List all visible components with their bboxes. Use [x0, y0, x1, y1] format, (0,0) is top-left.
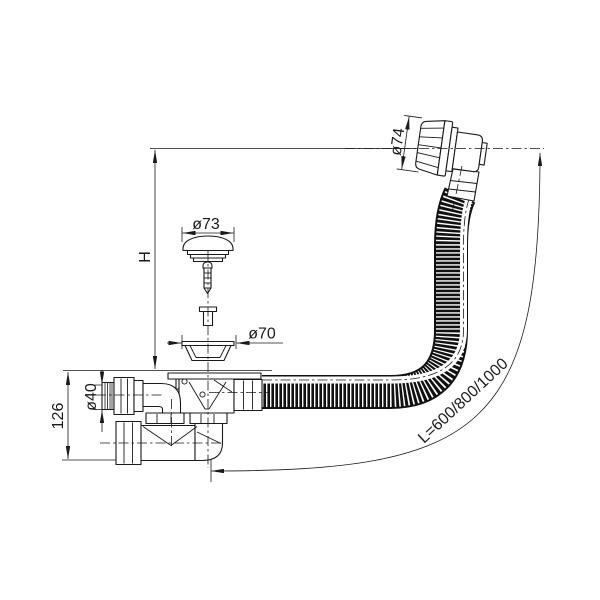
plug-diameter-label: ø73 — [192, 216, 220, 233]
overflow-fitting: ø74 — [386, 113, 490, 181]
outlet-nut — [114, 378, 134, 415]
dimension-mounting-height: H — [137, 150, 155, 369]
overflow-diameter-label: ø74 — [388, 127, 409, 157]
trap-union-nut-right — [190, 413, 227, 424]
flange-diameter-label: ø70 — [248, 326, 276, 343]
plug-screw-pin — [203, 262, 212, 268]
drain-plug-cap — [183, 236, 233, 251]
hose-body — [262, 195, 460, 392]
waste-trap-assembly — [102, 373, 262, 465]
dimension-plug-diameter: ø73 — [183, 216, 234, 233]
plug-screw-tip — [204, 288, 211, 294]
mounting-height-label: H — [137, 251, 154, 263]
trap-union-nut-left — [146, 413, 184, 424]
outlet-elbow — [143, 384, 181, 414]
overflow-connector — [447, 169, 479, 201]
dimension-hose-length: L=600/800/1000 — [211, 153, 540, 471]
outlet-washer — [134, 381, 143, 412]
dimension-outlet-diameter: ø40 — [83, 370, 102, 432]
technical-drawing-canvas: ø74 — [0, 0, 600, 600]
dimension-flange-diameter: ø70 — [167, 326, 283, 344]
tee-top-flange — [168, 373, 261, 379]
flexible-hose — [262, 195, 470, 392]
hose-union-nut — [234, 380, 262, 411]
overflow-body — [452, 132, 483, 172]
outlet-diameter-label: ø40 — [83, 383, 100, 411]
dimension-trap-height: 126 — [50, 372, 68, 459]
tee-body — [179, 379, 234, 413]
trap-height-label: 126 — [50, 403, 67, 430]
